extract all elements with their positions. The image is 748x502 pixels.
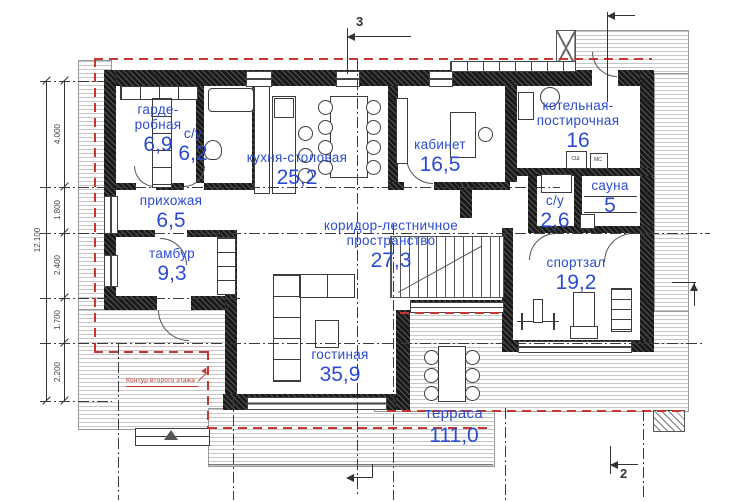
wall-pilaster <box>460 185 472 218</box>
marker-tr-vline <box>607 12 608 102</box>
room-name: котельная- <box>530 98 626 113</box>
dim-seg-3: 2.400 <box>53 243 63 287</box>
room-area: 5 <box>584 194 636 218</box>
vestibule-closet <box>217 237 236 295</box>
gym-rack <box>611 288 632 332</box>
section2-vline <box>610 446 611 474</box>
contour-top <box>94 58 652 60</box>
room-area: 6,2 <box>168 142 218 166</box>
room-name: сауна <box>584 178 636 193</box>
office-chair <box>478 127 493 142</box>
room-name: терраса <box>414 406 494 423</box>
dim-seg-1: 4.000 <box>53 112 63 156</box>
washer-label: СШ <box>566 157 585 162</box>
room-name: гостиная <box>302 347 378 362</box>
room-area: 25,2 <box>227 166 367 190</box>
dining-chair-2 <box>318 120 333 135</box>
axis-v-section3 <box>357 60 358 494</box>
room-label-gym: спортзал 19,2 <box>538 255 614 295</box>
cooktop <box>274 98 294 118</box>
terrace-edge-bottom <box>208 464 493 465</box>
contour-left-2 <box>207 351 209 428</box>
terrace-table <box>438 346 466 402</box>
wall-top <box>110 70 654 86</box>
terrace-chair-1 <box>424 350 439 365</box>
second-floor-contour-note: Контур второго этажа <box>126 377 202 384</box>
room-name: кухня-столовая <box>227 150 367 165</box>
room-name: с/у <box>168 126 218 141</box>
bar-stool-1 <box>298 126 313 141</box>
room-label-bath2: с/у 2,6 <box>532 193 578 233</box>
axis-v-1 <box>118 343 119 500</box>
axis-h-4 <box>40 298 240 299</box>
room-area: 19,2 <box>538 271 614 295</box>
axis-h-1 <box>40 81 118 82</box>
section3-arrow <box>347 33 355 41</box>
room-name: прихожая <box>132 193 210 208</box>
terrace-chair-2 <box>424 368 439 383</box>
marker-tr-arrow <box>607 12 615 20</box>
axis-v-2 <box>233 396 234 500</box>
marker-r-arrow <box>690 283 698 291</box>
dining-chair-6 <box>366 120 381 135</box>
window-kitchen-1 <box>246 71 272 87</box>
window-office <box>429 71 453 87</box>
floor-plan: СШ МС <box>0 0 748 502</box>
room-label-boiler: котельная- постирочная 16 <box>530 98 626 153</box>
room-label-vestibule: тамбур 9,3 <box>140 246 204 286</box>
contour-corridor <box>400 312 502 314</box>
room-name2: постирочная <box>530 113 626 128</box>
room-label-hallway: прихожая 6,5 <box>132 193 210 233</box>
wall-right <box>640 70 654 352</box>
section3-hline <box>347 36 411 37</box>
terrace-chair-6 <box>465 386 480 401</box>
note-leader-h <box>126 386 198 387</box>
room-name: тамбур <box>140 246 204 261</box>
room-area: 16 <box>530 129 626 153</box>
room-area: 2,6 <box>532 209 578 233</box>
room-label-bath1: с/у 6,2 <box>168 126 218 166</box>
room-name: спортзал <box>538 255 614 270</box>
room-name: гарде- <box>118 102 198 117</box>
axis-h-6 <box>40 401 112 402</box>
barbell-post <box>533 299 543 323</box>
room-label-kitchen: кухня-столовая 25,2 <box>227 150 367 190</box>
wall-office-boiler <box>505 86 517 182</box>
room-name: кабинет <box>405 137 475 152</box>
section3-label: 3 <box>356 14 363 29</box>
room-label-sauna: сауна 5 <box>584 178 636 218</box>
contour-left <box>94 58 96 351</box>
dim-line-total <box>46 81 47 401</box>
room-label-corridor: коридор-лестничное пространство 27,3 <box>281 218 501 273</box>
contour-jog <box>94 351 208 353</box>
room-label-living: гостиная 35,9 <box>302 347 378 387</box>
barbell-plate-l <box>521 313 523 330</box>
section2-arrow <box>610 461 618 469</box>
gym-bench-seat <box>570 326 598 339</box>
dim-line-segments <box>64 81 65 401</box>
room-area: 9,3 <box>140 262 204 286</box>
entry-arrow-vline <box>372 464 373 478</box>
room-name: коридор-лестничное пространство <box>281 218 501 248</box>
room-area: 6,5 <box>132 209 210 233</box>
room-name: с/у <box>532 193 578 208</box>
axis-v-4 <box>505 408 506 500</box>
room-label-terrace: терраса 111,0 <box>414 406 494 447</box>
room-area: 16,5 <box>405 153 475 177</box>
terrace-right-strip <box>654 65 689 312</box>
window-hallway <box>104 196 118 234</box>
dining-chair-5 <box>366 100 381 115</box>
steps-direction-mark <box>164 430 178 440</box>
dim-seg-2: 1.800 <box>53 188 63 232</box>
window-living <box>247 397 387 410</box>
room-area: 27,3 <box>281 249 501 273</box>
bathtub <box>208 88 254 112</box>
dim-total: 12.100 <box>33 218 43 262</box>
bath2-sink <box>541 174 572 193</box>
dining-chair-1 <box>318 100 333 115</box>
axis-h-5 <box>40 343 705 344</box>
dining-chair-7 <box>366 140 381 155</box>
terrace-pier <box>653 410 685 432</box>
entry-arrow-head <box>346 474 354 482</box>
terrace-chair-3 <box>424 386 439 401</box>
window-vestibule <box>104 255 118 287</box>
sofa-vertical <box>273 274 301 382</box>
wall-living-right <box>396 310 410 410</box>
dim-seg-5: 2.200 <box>53 350 63 394</box>
terrace-chair-4 <box>465 350 480 365</box>
dining-chair-8 <box>366 160 381 175</box>
dim-seg-4: 1.700 <box>53 298 63 342</box>
window-band-office <box>450 61 576 72</box>
axis-v-5 <box>643 410 644 500</box>
barbell-plate-r <box>553 313 555 330</box>
sofa-horizontal <box>299 274 355 298</box>
terrace-chair-5 <box>465 368 480 383</box>
wall-boiler-bottom <box>517 168 654 176</box>
room-label-office: кабинет 16,5 <box>405 137 475 177</box>
dryer-label: МС <box>590 158 606 163</box>
room-area: 35,9 <box>302 363 378 387</box>
room-area: 111,0 <box>414 424 494 448</box>
section2-label: 2 <box>620 466 627 481</box>
